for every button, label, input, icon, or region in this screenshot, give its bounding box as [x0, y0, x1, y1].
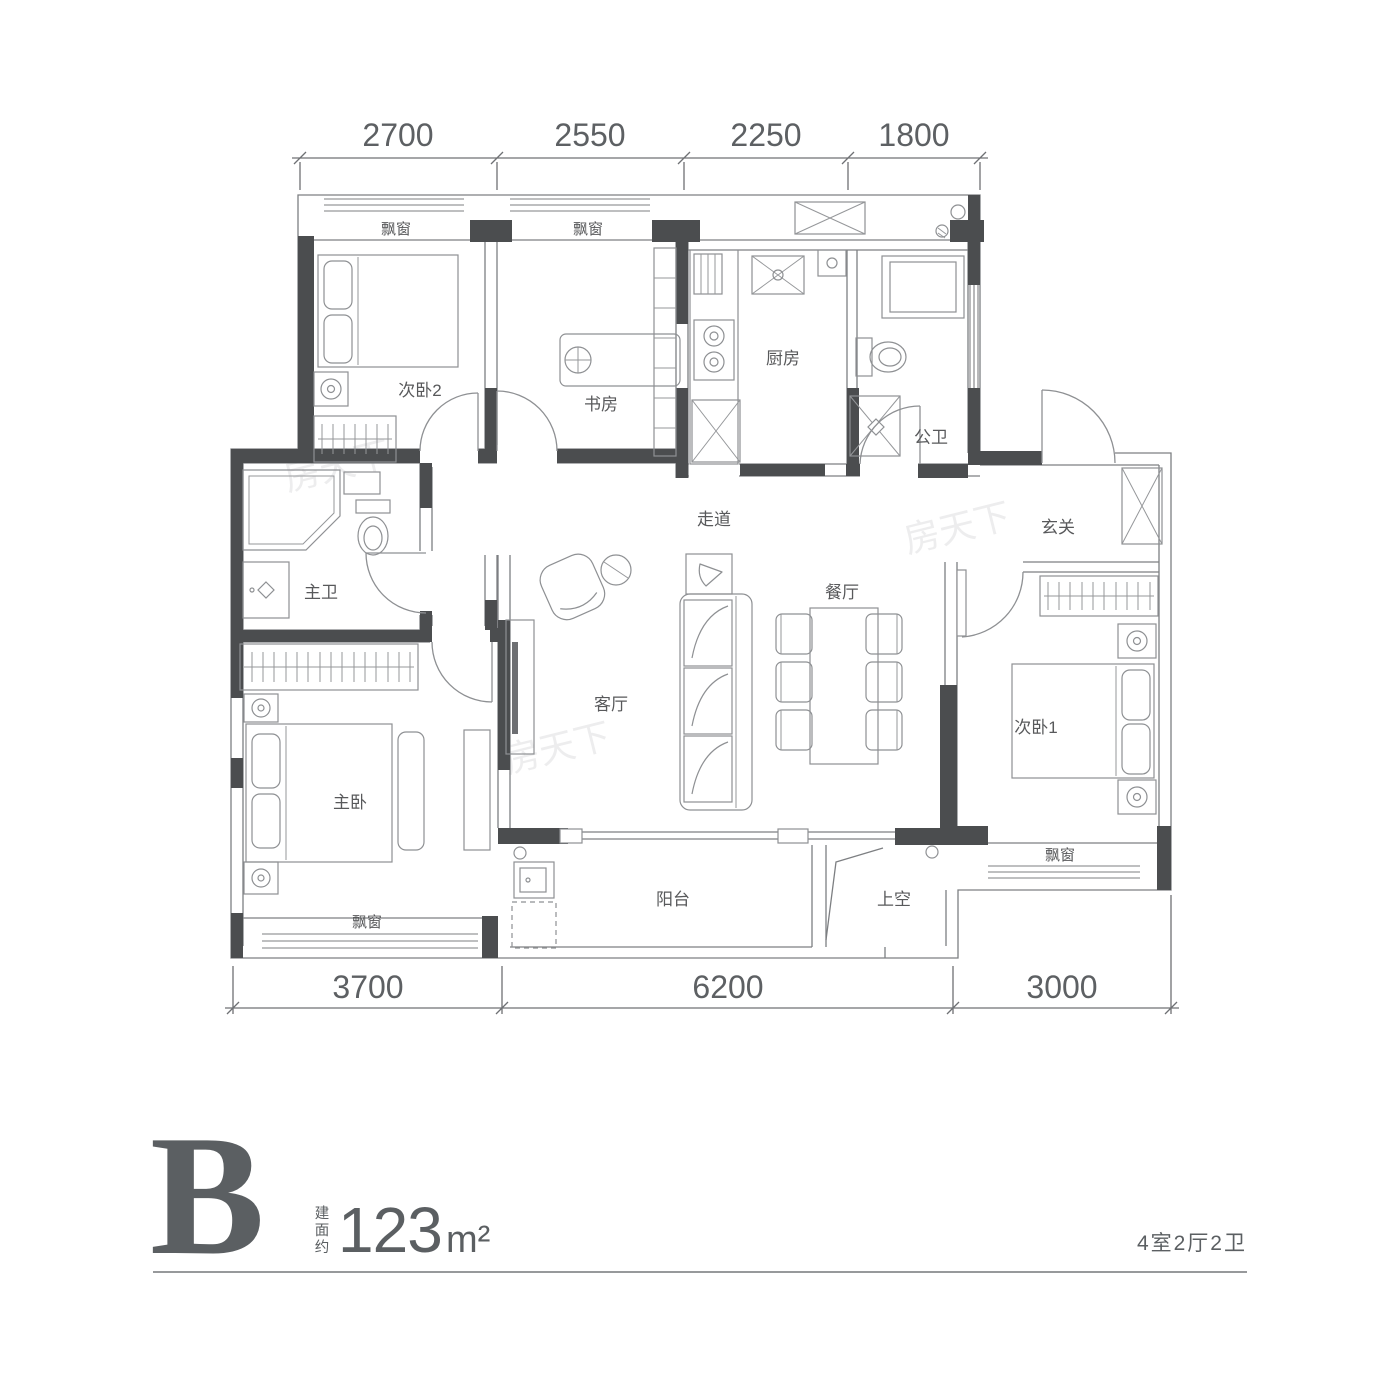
dim-top-1: 2700: [362, 117, 433, 153]
door-study: [497, 391, 557, 451]
unit-name: B: [150, 1101, 265, 1291]
dim-bottom-3: 3000: [1026, 969, 1097, 1005]
bench: [398, 732, 424, 850]
balcony-sink: [514, 862, 554, 898]
nightstand: [314, 372, 348, 406]
ac-unit: [686, 554, 732, 594]
room-label-bedroom2: 次卧2: [398, 381, 441, 400]
armchair: [535, 549, 610, 625]
dim-bottom-2: 6200: [692, 969, 763, 1005]
room-label-corridor: 走道: [697, 510, 731, 529]
flue-box: [752, 256, 804, 294]
room-label-bedroom-master: 主卧: [333, 793, 367, 812]
washer: [882, 256, 964, 318]
area-value: 123: [338, 1194, 442, 1266]
door-bedroom-master: [432, 642, 492, 702]
room-label-bath-master: 主卫: [304, 583, 338, 602]
nightstand: [244, 862, 278, 894]
dim-bottom-1: 3700: [332, 969, 403, 1005]
bed-master: [246, 724, 392, 862]
dim-top-2: 2550: [554, 117, 625, 153]
side-table: [601, 555, 631, 585]
dresser: [464, 730, 490, 850]
nightstand: [1118, 624, 1156, 658]
footer: B 建 面 约 123 m² 4室2厅2卫: [150, 1101, 1247, 1291]
balcony-furniture: [512, 847, 556, 948]
door-bath-public: [860, 406, 920, 464]
kitchen-sink: [818, 250, 846, 276]
study-furniture: [560, 248, 680, 456]
kitchen-counter: [690, 250, 738, 464]
bay-label-study: 飘窗: [573, 220, 603, 238]
toilet-master: [356, 500, 390, 555]
wardrobe-master: [240, 644, 418, 690]
floorplan-drawing: 房天下 房天下 房天下: [0, 0, 1400, 1400]
window-bath-public: [970, 285, 978, 390]
dim-top-4: 1800: [878, 117, 949, 153]
furniture: [240, 248, 1162, 958]
dining-table: [810, 608, 878, 764]
toilet-public: [856, 338, 906, 376]
area-prefix: 建 面 约: [315, 1205, 330, 1256]
room-label-study: 书房: [584, 395, 618, 414]
floorplan-page: 房天下 房天下 房天下: [0, 0, 1400, 1400]
fridge-space: [692, 400, 740, 462]
dining-furniture: [776, 608, 902, 764]
bedroom-master-furniture: [244, 694, 490, 894]
bookshelf: [654, 248, 676, 456]
area-prefix-char-3: 约: [315, 1239, 330, 1256]
bay-window-bedroom2-glazing: [324, 199, 464, 211]
bay-window-bedroom1-glazing: [988, 866, 1140, 878]
bay-window-study-glazing: [510, 199, 650, 211]
area-prefix-char-1: 建: [315, 1205, 330, 1222]
nightstand: [1118, 780, 1156, 814]
area-prefix-char-2: 面: [315, 1223, 330, 1239]
room-label-bedroom1: 次卧1: [1014, 718, 1057, 737]
wardrobe-bedroom1: [1040, 576, 1158, 616]
watermark-text: 房天下: [900, 495, 1015, 561]
dim-top-3: 2250: [730, 117, 801, 153]
bay-label-master: 飘窗: [352, 913, 382, 931]
bath-public-furniture: [850, 256, 964, 456]
tv: [512, 642, 518, 734]
dimensions-bottom: 3700 6200 3000: [225, 895, 1179, 1014]
room-label-kitchen: 厨房: [766, 349, 800, 368]
door-bedroom1: [957, 570, 1023, 637]
bay-label-bedroom1: 飘窗: [1045, 846, 1075, 864]
bedroom1-furniture: [1012, 576, 1158, 814]
room-label-balcony: 阳台: [656, 890, 690, 909]
watermarks: 房天下 房天下 房天下: [280, 433, 1015, 781]
door-bedroom2: [420, 393, 478, 451]
vanity-master: [243, 562, 289, 618]
bay-window-master-glazing: [262, 934, 478, 948]
sofa: [680, 594, 752, 810]
room-label-living: 客厅: [594, 695, 628, 714]
nightstand: [244, 694, 278, 722]
room-label-void: 上空: [877, 890, 911, 909]
room-label-bath-public: 公卫: [914, 428, 948, 447]
stove: [694, 320, 734, 380]
sliding-door-panels: [560, 829, 808, 843]
room-label-foyer: 玄关: [1041, 518, 1075, 537]
layout-spec: 4室2厅2卫: [1137, 1232, 1247, 1255]
area-unit: m²: [446, 1219, 490, 1261]
room-label-dining: 餐厅: [825, 583, 859, 602]
kitchen-vent-shaft: [795, 202, 865, 234]
bedroom2-furniture: [314, 255, 458, 462]
foyer-closet: [1122, 468, 1162, 544]
bay-label-bedroom2: 飘窗: [381, 220, 411, 238]
washer-reserved: [512, 902, 556, 948]
bed-bedroom2: [318, 255, 458, 367]
floor-drain: [514, 847, 526, 859]
dimensions-top: 2700 2550 2250 1800: [292, 117, 988, 190]
